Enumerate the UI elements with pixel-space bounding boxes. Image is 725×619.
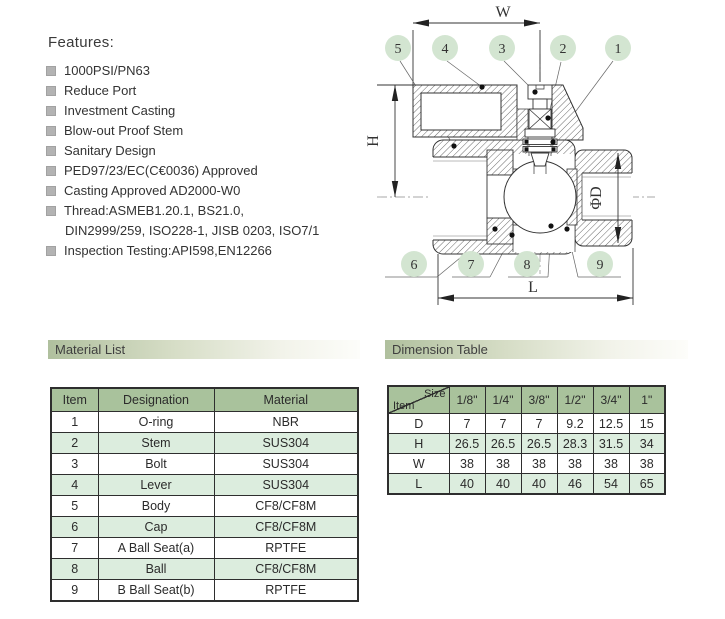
feature-item: Casting Approved AD2000-W0 xyxy=(46,181,319,201)
corner-size-label: Size xyxy=(424,388,445,400)
feature-item: Inspection Testing:API598,EN12266 xyxy=(46,241,319,261)
dim-value: 46 xyxy=(557,474,593,495)
cell-item: 7 xyxy=(51,538,98,559)
feature-item: Reduce Port xyxy=(46,81,319,101)
callout-7: 7 xyxy=(468,258,475,273)
callout-2: 2 xyxy=(560,42,567,57)
callout-9: 9 xyxy=(597,258,604,273)
dim-value: 7 xyxy=(521,414,557,434)
cell-designation: Bolt xyxy=(98,454,214,475)
table-row: 3 Bolt SUS304 xyxy=(51,454,358,475)
cell-item: 5 xyxy=(51,496,98,517)
feature-text: Casting Approved AD2000-W0 xyxy=(64,181,240,201)
cell-material: SUS304 xyxy=(214,475,358,496)
size-header: 3/8" xyxy=(521,386,557,414)
cell-designation: A Ball Seat(a) xyxy=(98,538,214,559)
cell-item: 6 xyxy=(51,517,98,538)
dim-value: 26.5 xyxy=(521,434,557,454)
dim-label-w: W xyxy=(495,4,511,21)
cell-material: CF8/CF8M xyxy=(214,517,358,538)
cell-item: 4 xyxy=(51,475,98,496)
dimension-table-header: Dimension Table xyxy=(385,340,688,359)
features-title: Features: xyxy=(48,34,319,51)
table-row: 5 Body CF8/CF8M xyxy=(51,496,358,517)
bullet-square-icon xyxy=(46,86,56,96)
callout-4: 4 xyxy=(442,42,449,57)
callout-3: 3 xyxy=(499,42,506,57)
cell-material: CF8/CF8M xyxy=(214,496,358,517)
dim-value: 34 xyxy=(629,434,665,454)
feature-item: Investment Casting xyxy=(46,101,319,121)
cell-designation: Cap xyxy=(98,517,214,538)
cell-item: 8 xyxy=(51,559,98,580)
dim-row-label: W xyxy=(388,454,449,474)
bullet-square-icon xyxy=(46,166,56,176)
feature-text: Sanitary Design xyxy=(64,141,156,161)
material-table: Item Designation Material 1 O-ring NBR 2… xyxy=(50,387,359,602)
dim-value: 31.5 xyxy=(593,434,629,454)
table-row: 2 Stem SUS304 xyxy=(51,433,358,454)
cell-designation: Body xyxy=(98,496,214,517)
table-row: D 7 7 7 9.2 12.5 15 xyxy=(388,414,665,434)
col-header-designation: Designation xyxy=(98,388,214,412)
feature-item: Thread:ASMEB1.20.1, BS21.0, xyxy=(46,201,319,221)
dim-label-h: H xyxy=(365,135,382,147)
feature-text: Inspection Testing:API598,EN12266 xyxy=(64,241,272,261)
features-section: Features: 1000PSI/PN63 Reduce Port Inves… xyxy=(46,34,319,261)
dim-value: 38 xyxy=(449,454,485,474)
table-row: 8 Ball CF8/CF8M xyxy=(51,559,358,580)
dimension-table-header-row: Size Item 1/8" 1/4" 3/8" 1/2" 3/4" 1" xyxy=(388,386,665,414)
feature-item: Sanitary Design xyxy=(46,141,319,161)
feature-text: Blow-out Proof Stem xyxy=(64,121,183,141)
dim-value: 38 xyxy=(557,454,593,474)
dim-value: 38 xyxy=(629,454,665,474)
cell-item: 1 xyxy=(51,412,98,433)
dim-row-label: H xyxy=(388,434,449,454)
cell-item: 9 xyxy=(51,580,98,602)
dimension-w xyxy=(413,20,540,86)
dim-value: 38 xyxy=(485,454,521,474)
callout-5: 5 xyxy=(395,42,402,57)
cell-material: SUS304 xyxy=(214,454,358,475)
table-row: 1 O-ring NBR xyxy=(51,412,358,433)
feature-text: Reduce Port xyxy=(64,81,136,101)
dim-label-l: L xyxy=(528,279,538,296)
table-row: 9 B Ball Seat(b) RPTFE xyxy=(51,580,358,602)
table-row: L 40 40 40 46 54 65 xyxy=(388,474,665,495)
dim-row-label: L xyxy=(388,474,449,495)
cell-designation: Ball xyxy=(98,559,214,580)
cell-material: RPTFE xyxy=(214,538,358,559)
size-header: 1/4" xyxy=(485,386,521,414)
cell-material: NBR xyxy=(214,412,358,433)
dim-value: 38 xyxy=(521,454,557,474)
cell-item: 2 xyxy=(51,433,98,454)
callout-8: 8 xyxy=(524,258,531,273)
feature-text-continuation: DIN2999/259, ISO228-1, JISB 0203, ISO7/1 xyxy=(65,221,319,241)
dim-label-d: ΦD xyxy=(588,186,605,209)
size-header: 1/8" xyxy=(449,386,485,414)
dim-value: 12.5 xyxy=(593,414,629,434)
cell-designation: B Ball Seat(b) xyxy=(98,580,214,602)
dim-value: 26.5 xyxy=(449,434,485,454)
bullet-square-icon xyxy=(46,246,56,256)
callout-1: 1 xyxy=(615,42,622,57)
col-header-item: Item xyxy=(51,388,98,412)
cell-designation: O-ring xyxy=(98,412,214,433)
valve-lever xyxy=(413,85,583,140)
col-header-material: Material xyxy=(214,388,358,412)
bullet-square-icon xyxy=(46,206,56,216)
feature-text: Thread:ASMEB1.20.1, BS21.0, xyxy=(64,201,244,221)
bullet-square-icon xyxy=(46,106,56,116)
cell-designation: Lever xyxy=(98,475,214,496)
dim-value: 65 xyxy=(629,474,665,495)
material-table-header-row: Item Designation Material xyxy=(51,388,358,412)
table-row: 6 Cap CF8/CF8M xyxy=(51,517,358,538)
valve-ball xyxy=(504,161,576,233)
dim-value: 40 xyxy=(485,474,521,495)
bullet-square-icon xyxy=(46,66,56,76)
table-row: H 26.5 26.5 26.5 28.3 31.5 34 xyxy=(388,434,665,454)
dim-value: 40 xyxy=(521,474,557,495)
dimension-table: Size Item 1/8" 1/4" 3/8" 1/2" 3/4" 1" D … xyxy=(387,385,666,495)
dim-value: 26.5 xyxy=(485,434,521,454)
corner-item-label: Item xyxy=(393,400,414,412)
table-row: 4 Lever SUS304 xyxy=(51,475,358,496)
cell-designation: Stem xyxy=(98,433,214,454)
bullet-square-icon xyxy=(46,146,56,156)
dim-value: 7 xyxy=(449,414,485,434)
dim-value: 9.2 xyxy=(557,414,593,434)
feature-text: 1000PSI/PN63 xyxy=(64,61,150,81)
feature-text: PED97/23/EC(C€0036) Approved xyxy=(64,161,258,181)
dimension-table-title: Dimension Table xyxy=(392,342,488,357)
table-row: 7 A Ball Seat(a) RPTFE xyxy=(51,538,358,559)
material-list-header: Material List xyxy=(48,340,360,359)
datasheet-page: Features: 1000PSI/PN63 Reduce Port Inves… xyxy=(0,0,725,619)
size-header: 1" xyxy=(629,386,665,414)
size-item-corner-cell: Size Item xyxy=(388,386,449,414)
bullet-square-icon xyxy=(46,126,56,136)
valve-cross-section-drawing: W H L xyxy=(365,2,715,318)
dim-value: 38 xyxy=(593,454,629,474)
dimension-h xyxy=(377,85,413,197)
feature-item: 1000PSI/PN63 xyxy=(46,61,319,81)
dim-value: 28.3 xyxy=(557,434,593,454)
cell-material: SUS304 xyxy=(214,433,358,454)
dim-value: 40 xyxy=(449,474,485,495)
size-header: 1/2" xyxy=(557,386,593,414)
cell-material: CF8/CF8M xyxy=(214,559,358,580)
cell-item: 3 xyxy=(51,454,98,475)
feature-item: PED97/23/EC(C€0036) Approved xyxy=(46,161,319,181)
cell-material: RPTFE xyxy=(214,580,358,602)
dim-row-label: D xyxy=(388,414,449,434)
table-row: W 38 38 38 38 38 38 xyxy=(388,454,665,474)
callout-6: 6 xyxy=(411,258,418,273)
feature-text: Investment Casting xyxy=(64,101,175,121)
bullet-square-icon xyxy=(46,186,56,196)
material-list-title: Material List xyxy=(55,342,125,357)
dim-value: 15 xyxy=(629,414,665,434)
size-header: 3/4" xyxy=(593,386,629,414)
feature-item: Blow-out Proof Stem xyxy=(46,121,319,141)
dim-value: 7 xyxy=(485,414,521,434)
dim-value: 54 xyxy=(593,474,629,495)
